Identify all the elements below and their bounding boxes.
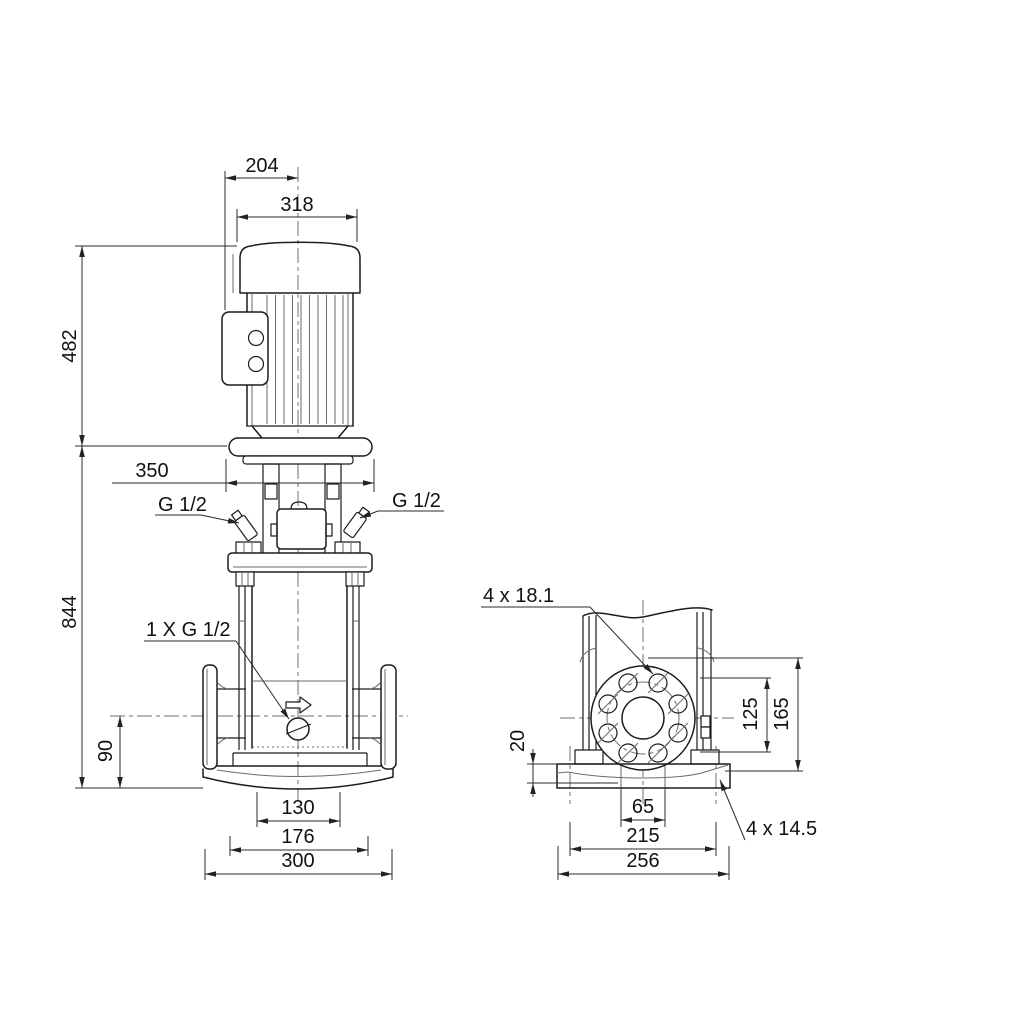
label-flange-holes: 4 x 18.1 [483, 585, 554, 607]
dim-20-label: 20 [507, 730, 529, 752]
dim-204-label: 204 [245, 155, 278, 177]
motor-flange [229, 438, 372, 456]
label-drain-plug: 1 X G 1/2 [146, 619, 231, 641]
terminal-box [222, 312, 268, 385]
nameplate-clip [701, 716, 710, 727]
motor-fins [267, 295, 343, 424]
motor-stool-plate [243, 456, 353, 464]
dim-130-label: 130 [281, 797, 314, 819]
dimensions-front: 204 318 482 844 90 350 G 1/2 G 1/2 1 X G… [59, 155, 444, 880]
dim-125-label: 125 [740, 697, 762, 730]
side-view [557, 600, 734, 806]
shaft-guard-right [325, 464, 341, 553]
coupling-lantern [228, 464, 372, 586]
staybolt-nut-left [236, 572, 254, 586]
guard-window-left [265, 484, 277, 499]
motor-neck [252, 426, 348, 438]
label-base-holes: 4 x 14.5 [746, 818, 817, 840]
guard-window-right [327, 484, 339, 499]
dim-482-label: 482 [59, 329, 81, 362]
pump-head-plate [228, 553, 372, 572]
dim-300-label: 300 [281, 850, 314, 872]
priming-plug-right [343, 506, 371, 538]
label-plug-left: G 1/2 [158, 494, 207, 516]
dim-318-label: 318 [280, 194, 313, 216]
dim-844-label: 844 [59, 595, 81, 628]
dim-176-label: 176 [281, 826, 314, 848]
dim-215-label: 215 [626, 825, 659, 847]
dim-256-label: 256 [626, 850, 659, 872]
break-line [583, 608, 712, 618]
motor [222, 242, 372, 464]
label-plug-right: G 1/2 [392, 490, 441, 512]
dim-165-label: 165 [771, 697, 793, 730]
dim-90-label: 90 [95, 740, 117, 762]
priming-plug-left [230, 509, 258, 541]
drain-plug [286, 697, 311, 740]
shaft [291, 502, 307, 509]
staybolt-nut-right [346, 572, 364, 586]
dim-350-label: 350 [135, 460, 168, 482]
leg-foot-left [575, 750, 603, 764]
pump-dimensional-drawing: 204 318 482 844 90 350 G 1/2 G 1/2 1 X G… [0, 0, 1024, 1024]
coupling-block [277, 509, 326, 549]
motor-top-cap [240, 242, 360, 293]
dim-65-label: 65 [632, 796, 654, 818]
